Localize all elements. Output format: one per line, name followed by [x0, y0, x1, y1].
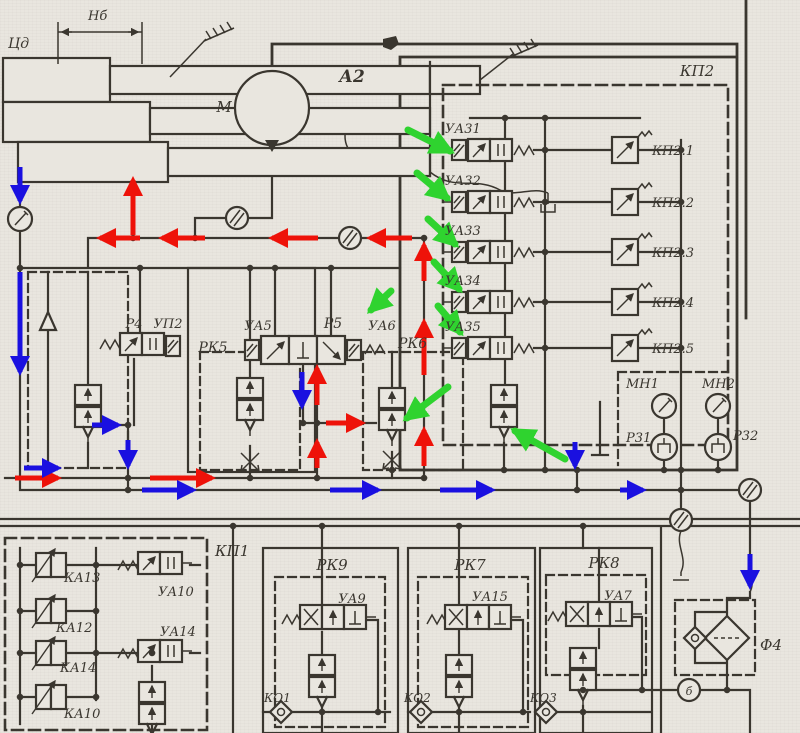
- schematic-canvas: Цд Нб М А2 КП2 УА31 УА32 УА33 УА34 УА35 …: [0, 0, 800, 733]
- label-motor: М: [215, 98, 232, 116]
- label-r31: Р31: [625, 431, 651, 446]
- cylinder-rod-3: [168, 148, 430, 176]
- label-kp22: КП2.2: [651, 196, 694, 211]
- valve-ya7-symbol: [548, 602, 642, 626]
- rk5-reducing-unit: [188, 268, 315, 472]
- rk9-dashed-box: [275, 577, 385, 727]
- gauge-mn1-symbol: [652, 394, 676, 418]
- valve-ya35-symbol: [444, 337, 534, 359]
- rk7-unit: [408, 548, 535, 733]
- rk8-outer-box: [540, 548, 652, 733]
- label-dimension: Нб: [87, 9, 107, 24]
- valve-ya10-symbol: [118, 552, 192, 574]
- label-ya35: УА35: [445, 320, 481, 335]
- rk7-outer-box: [408, 548, 535, 733]
- valve-r4-up2: [100, 333, 180, 356]
- check-valve-icon: [40, 312, 56, 330]
- label-kp23: КП2.3: [651, 246, 694, 261]
- kp2-valve-block: [443, 85, 728, 445]
- label-ya7: УА7: [604, 589, 632, 604]
- connector-symbol: [383, 36, 399, 50]
- valve-ya31-symbol: [444, 139, 534, 161]
- relief-kp21-symbol: [612, 131, 652, 163]
- label-kp25: КП2.5: [651, 342, 694, 357]
- label-r32: Р32: [732, 429, 758, 444]
- label-ka10: КА10: [63, 707, 100, 722]
- relief-kp24-symbol: [612, 283, 652, 315]
- label-ko3: КО3: [529, 691, 557, 705]
- clevis-bracket: [430, 66, 480, 94]
- label-kp2: КП2: [679, 62, 714, 80]
- label-ka12: КА12: [55, 621, 92, 636]
- label-f4: Ф4: [760, 636, 782, 654]
- label-rk9: РК9: [315, 556, 348, 574]
- label-cylinder: Цд: [8, 36, 29, 52]
- label-rk6: РК6: [397, 336, 427, 352]
- a2-reducer-symbol: [491, 385, 517, 443]
- anchor-symbol-left: [204, 22, 234, 41]
- rk7-reducer-symbol: [446, 655, 472, 713]
- label-rk7: РК7: [453, 556, 486, 574]
- coupling-icon: [739, 479, 761, 501]
- rk8-reducer-symbol: [570, 648, 596, 706]
- label-ka13: КА13: [63, 571, 100, 586]
- unit-pipes: [48, 272, 88, 468]
- label-rk5: РК5: [197, 340, 227, 356]
- cylinder-block-3: [18, 142, 168, 182]
- label-ko1: КО1: [263, 691, 291, 705]
- bypass-check-symbol: [684, 627, 706, 649]
- label-ya31: УА31: [445, 122, 481, 137]
- label-kp24: КП2.4: [651, 296, 694, 311]
- rk5-outer-box: [188, 268, 315, 472]
- label-ya33: УА33: [445, 224, 481, 239]
- filter-symbol: [705, 616, 749, 660]
- valve-ya15-symbol: [427, 605, 521, 629]
- cylinder-block-2: [3, 102, 150, 142]
- selector-r32-symbol: [705, 434, 731, 460]
- valve-ya34-symbol: [444, 291, 534, 313]
- label-r5: Р5: [323, 316, 342, 332]
- label-ya6: УА6: [368, 319, 396, 334]
- relief-valve-symbol: [75, 385, 101, 443]
- label-ya14: УА14: [160, 625, 196, 640]
- selector-r31-symbol: [651, 434, 677, 460]
- label-ya15: УА15: [472, 590, 508, 605]
- left-supply-unit: [28, 272, 128, 468]
- coupling-icon: [339, 227, 361, 249]
- label-ya32: УА32: [445, 174, 481, 189]
- rk8-unit: [535, 548, 652, 733]
- cartridge-ka13-symbol: [32, 549, 66, 582]
- label-mn2: МН2: [701, 377, 735, 392]
- valve-ya14-symbol: [118, 640, 192, 662]
- label-ka14: КА14: [59, 661, 96, 676]
- label-mn1: МН1: [625, 377, 659, 392]
- label-kp21: КП2.1: [651, 144, 694, 159]
- label-port-b: б: [686, 685, 693, 698]
- unit-boundary: [28, 272, 128, 468]
- valve-ya9-symbol: [282, 605, 376, 629]
- scanned-hydraulic-schematic: Цд Нб М А2 КП2 УА31 УА32 УА33 УА34 УА35 …: [0, 0, 800, 733]
- rk5-valve-symbol: [237, 378, 263, 436]
- cylinder-block-1: [3, 58, 110, 102]
- label-ya10: УА10: [158, 585, 194, 600]
- relief-kp25-symbol: [612, 329, 652, 361]
- label-ya9: УА9: [338, 592, 366, 607]
- bottom-pipes: [0, 519, 800, 733]
- rk9-reducer-symbol: [309, 655, 335, 713]
- cartridge-ka10-symbol: [32, 681, 66, 714]
- label-r4: Р4: [124, 317, 142, 332]
- motor-circle: [235, 71, 309, 145]
- label-ya34: УА34: [445, 274, 481, 289]
- label-ko2: КО2: [403, 691, 431, 705]
- label-rk8: РК8: [587, 554, 619, 572]
- relief-kp22-symbol: [612, 183, 652, 215]
- coupling-icon: [226, 207, 248, 229]
- relief-kp23-symbol: [612, 233, 652, 265]
- label-a2: А2: [337, 67, 365, 87]
- valve-ya32-symbol: [444, 191, 534, 213]
- label-kp1: КП1: [214, 542, 249, 560]
- label-ya5: УА5: [244, 319, 272, 334]
- pressure-gauge-symbol: [8, 207, 32, 231]
- gauge-mn2-symbol: [706, 394, 730, 418]
- coupling-icon: [670, 509, 692, 531]
- label-up2: УП2: [153, 317, 182, 332]
